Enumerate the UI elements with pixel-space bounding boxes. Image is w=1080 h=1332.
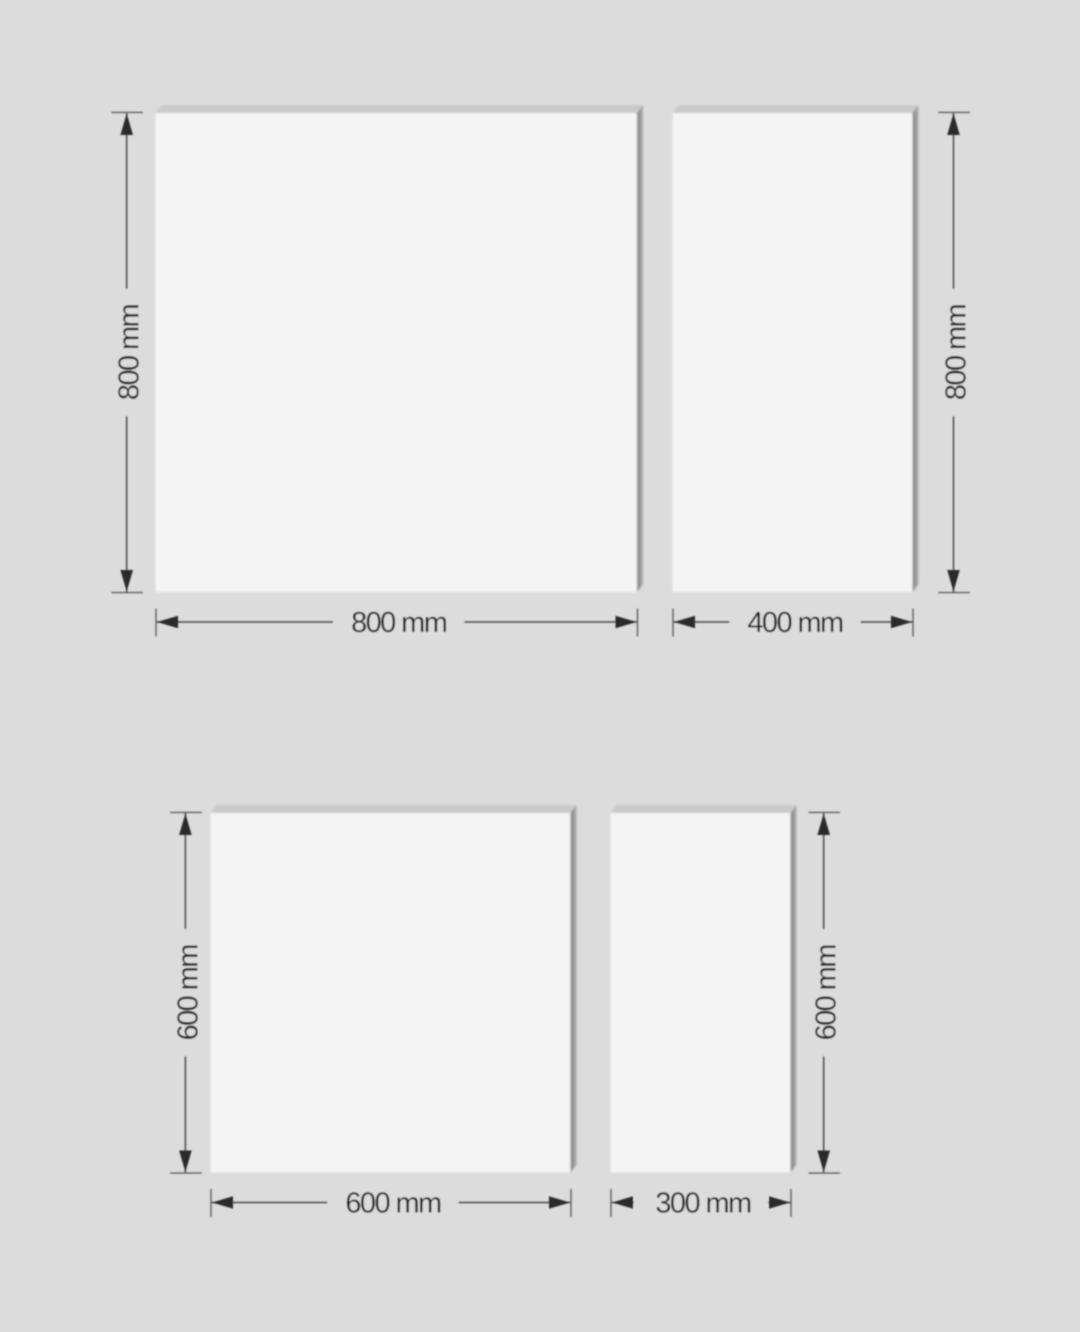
svg-text:800 mm: 800 mm (351, 607, 447, 639)
svg-text:600 mm: 600 mm (345, 1188, 441, 1220)
svg-text:400 mm: 400 mm (747, 607, 843, 639)
svg-text:800 mm: 800 mm (941, 304, 973, 400)
svg-text:600 mm: 600 mm (172, 945, 204, 1041)
svg-text:600 mm: 600 mm (811, 945, 843, 1041)
svg-text:800 mm: 800 mm (114, 304, 146, 400)
svg-text:300 mm: 300 mm (655, 1188, 751, 1220)
